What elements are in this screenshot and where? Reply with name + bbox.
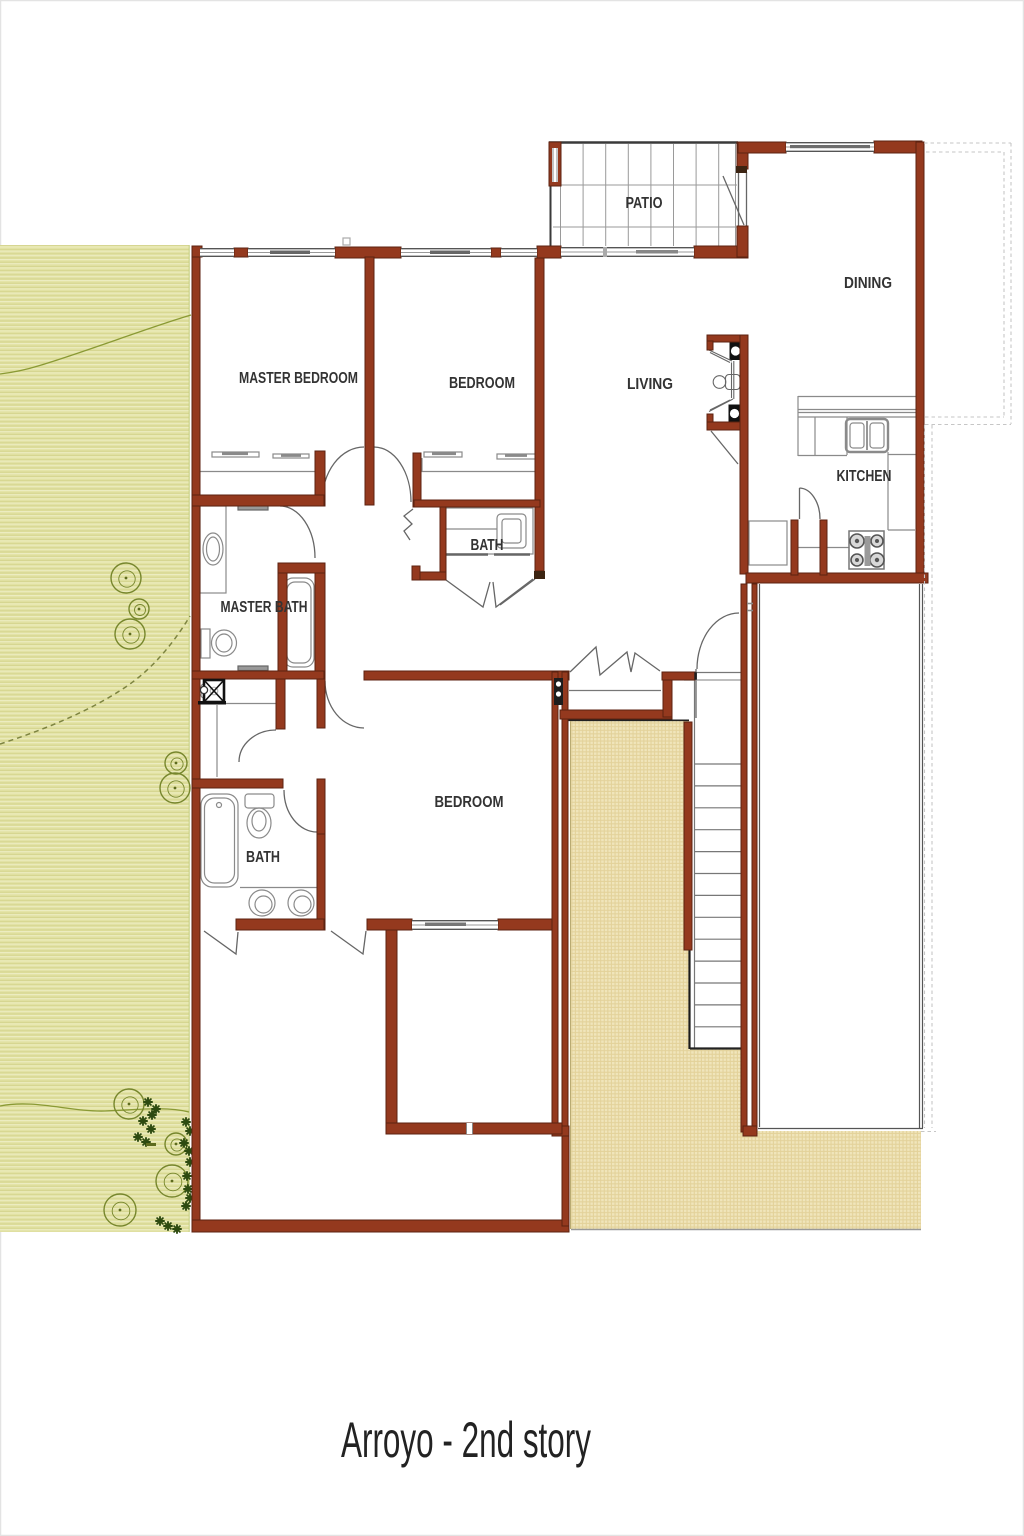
svg-text:BEDROOM: BEDROOM: [435, 794, 504, 811]
svg-text:LIVING: LIVING: [627, 376, 673, 393]
svg-text:PATIO: PATIO: [626, 195, 663, 212]
svg-text:KITCHEN: KITCHEN: [837, 468, 892, 485]
svg-text:BATH: BATH: [471, 537, 504, 554]
svg-text:DINING: DINING: [844, 275, 892, 292]
svg-text:BATH: BATH: [246, 849, 280, 866]
svg-text:MASTER BATH: MASTER BATH: [221, 599, 308, 616]
svg-text:MASTER BEDROOM: MASTER BEDROOM: [239, 370, 358, 387]
svg-text:Arroyo - 2nd story: Arroyo - 2nd story: [341, 1412, 591, 1468]
svg-text:BEDROOM: BEDROOM: [449, 375, 515, 392]
